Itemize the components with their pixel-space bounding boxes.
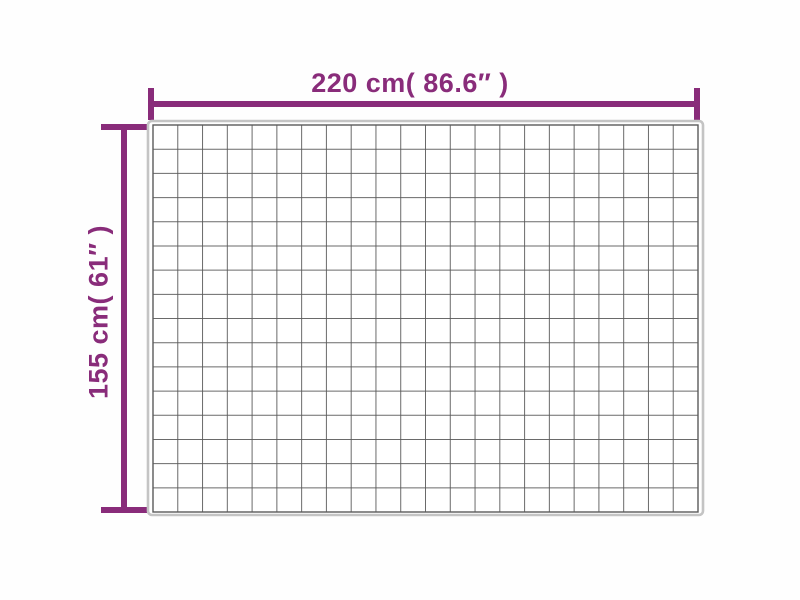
width-dimension-left-tick bbox=[148, 88, 154, 120]
blanket-grid bbox=[146, 119, 706, 519]
product-dimension-diagram: 220 cm( 86.6″ ) 155 cm( 61″ ) bbox=[0, 0, 800, 600]
width-dimension-right-tick bbox=[694, 88, 700, 120]
height-dimension-bottom-tick bbox=[101, 507, 147, 513]
height-dimension-top-tick bbox=[101, 124, 147, 130]
width-dimension-line bbox=[148, 101, 700, 107]
height-dimension-line bbox=[121, 124, 127, 513]
height-label: 155 cm( 61″ ) bbox=[84, 225, 115, 399]
width-label: 220 cm( 86.6″ ) bbox=[134, 68, 686, 99]
